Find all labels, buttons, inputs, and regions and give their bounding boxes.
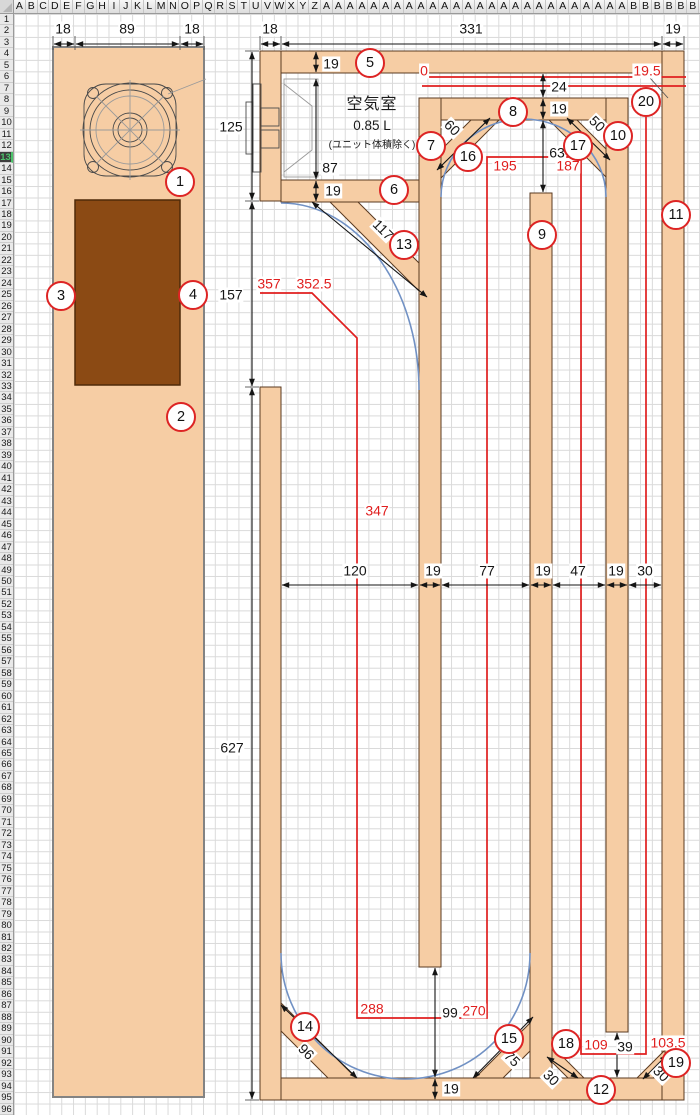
baffle-lower-2	[260, 387, 281, 1100]
divider-panel-10	[606, 98, 628, 1032]
horn-mouth-opening	[75, 200, 180, 385]
divider-panel-9	[530, 193, 552, 1078]
speaker-enclosure-drawing	[0, 0, 700, 1115]
horn-curve-upper-left	[281, 203, 419, 390]
bottom-panel-12	[281, 1078, 662, 1100]
top-panel-5	[281, 51, 662, 73]
air-chamber-note: (ユニット体積除く)	[329, 136, 416, 151]
horizontal-panel-8	[419, 98, 628, 120]
air-chamber-title: 空気室	[329, 90, 416, 114]
driver-side-view	[246, 79, 318, 177]
chamber-bottom-panel-6	[281, 180, 419, 202]
back-panel-11	[662, 51, 684, 1100]
brace-16	[441, 120, 499, 178]
air-chamber-label: 空気室 0.85 L (ユニット体積除く)	[329, 90, 416, 151]
deflector-13	[330, 202, 419, 291]
divider-panel-7	[419, 98, 441, 967]
spreadsheet-canvas: ABCDEFGHIJKLMNOPQRSTUVWXYZAAAAAAAAAAAAAA…	[0, 0, 700, 1115]
air-chamber-volume: 0.85 L	[329, 118, 416, 133]
brace-18	[552, 1046, 584, 1078]
